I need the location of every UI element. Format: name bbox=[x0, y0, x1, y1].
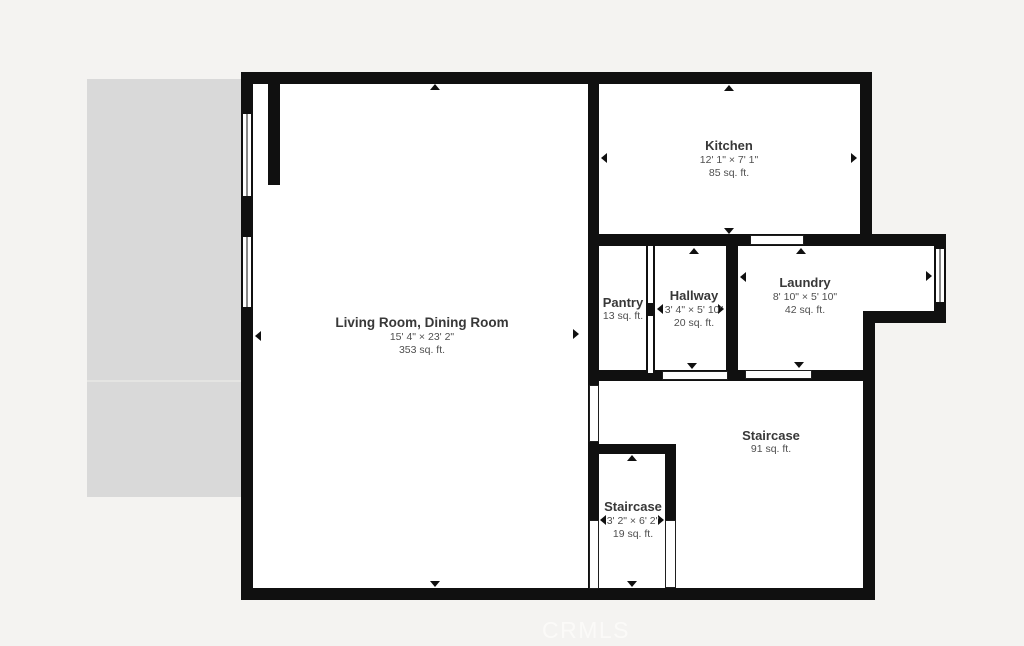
arrow-smallstair-bottom-icon bbox=[627, 581, 637, 587]
room-label-laundry: Laundry 8' 10" × 5' 10" 42 sq. ft. bbox=[746, 275, 864, 317]
staircase-small-dimensions: 3' 2" × 6' 2" bbox=[584, 514, 682, 528]
wall-exterior-right-lower bbox=[863, 311, 875, 600]
living-area: 353 sq. ft. bbox=[296, 344, 548, 357]
staircase-main-area: 91 sq. ft. bbox=[712, 443, 830, 456]
arrow-laundry-bottom-icon bbox=[794, 362, 804, 368]
wall-exterior-top bbox=[241, 72, 872, 84]
room-label-kitchen: Kitchen 12' 1" × 7' 1" 85 sq. ft. bbox=[629, 138, 829, 180]
hallway-dimensions: 3' 4" × 5' 10" bbox=[646, 303, 742, 317]
wall-exterior-right-kitchen bbox=[860, 72, 872, 246]
room-label-hallway: Hallway 3' 4" × 5' 10" 20 sq. ft. bbox=[646, 288, 742, 330]
crmls-watermark: CRMLS bbox=[538, 617, 634, 644]
door-hallway-staircase bbox=[662, 371, 728, 380]
hallway-area: 20 sq. ft. bbox=[646, 317, 742, 330]
arrow-living-top-icon bbox=[430, 84, 440, 90]
laundry-dimensions: 8' 10" × 5' 10" bbox=[746, 290, 864, 304]
arrow-living-right-icon bbox=[573, 329, 579, 339]
staircase-small-name: Staircase bbox=[584, 499, 682, 514]
wall-laundry-bump-bottom bbox=[863, 311, 946, 323]
window-living-left-lower bbox=[242, 236, 252, 308]
living-dimensions: 15' 4" × 23' 2" bbox=[296, 330, 548, 344]
arrow-kitchen-left-icon bbox=[601, 153, 607, 163]
door-laundry-staircase bbox=[745, 370, 812, 379]
laundry-area: 42 sq. ft. bbox=[746, 304, 864, 317]
arrow-living-left-icon bbox=[255, 331, 261, 341]
arrow-hallway-bottom-icon bbox=[687, 363, 697, 369]
room-label-staircase-main: Staircase 91 sq. ft. bbox=[712, 428, 830, 456]
hallway-name: Hallway bbox=[646, 288, 742, 303]
window-living-left-upper bbox=[242, 113, 252, 197]
room-label-staircase-small: Staircase 3' 2" × 6' 2" 19 sq. ft. bbox=[584, 499, 682, 541]
wall-smallstair-top bbox=[589, 444, 676, 454]
staircase-small-area: 19 sq. ft. bbox=[584, 528, 682, 541]
staircase-main-name: Staircase bbox=[712, 428, 830, 443]
arrow-kitchen-bottom-icon bbox=[724, 228, 734, 234]
arrow-laundry-top-icon bbox=[796, 248, 806, 254]
patio-seam-line bbox=[87, 380, 242, 382]
arrow-hallway-top-icon bbox=[689, 248, 699, 254]
kitchen-dimensions: 12' 1" × 7' 1" bbox=[629, 153, 829, 167]
window-laundry-right bbox=[935, 248, 945, 303]
arrow-living-bottom-icon bbox=[430, 581, 440, 587]
living-name: Living Room, Dining Room bbox=[296, 315, 548, 330]
floorplan-canvas: Kitchen 12' 1" × 7' 1" 85 sq. ft. Living… bbox=[0, 0, 1024, 646]
wall-entry-stub bbox=[268, 84, 280, 185]
arrow-smallstair-top-icon bbox=[627, 455, 637, 461]
arrow-kitchen-top-icon bbox=[724, 85, 734, 91]
arrow-kitchen-right-icon bbox=[851, 153, 857, 163]
kitchen-area: 85 sq. ft. bbox=[629, 167, 829, 180]
door-living-staircase bbox=[589, 385, 599, 442]
patio-area bbox=[87, 79, 253, 497]
room-label-living: Living Room, Dining Room 15' 4" × 23' 2"… bbox=[296, 315, 548, 357]
door-kitchen-laundry bbox=[750, 235, 804, 245]
wall-exterior-bottom bbox=[241, 588, 875, 600]
kitchen-name: Kitchen bbox=[629, 138, 829, 153]
arrow-laundry-right-icon bbox=[926, 271, 932, 281]
laundry-name: Laundry bbox=[746, 275, 864, 290]
